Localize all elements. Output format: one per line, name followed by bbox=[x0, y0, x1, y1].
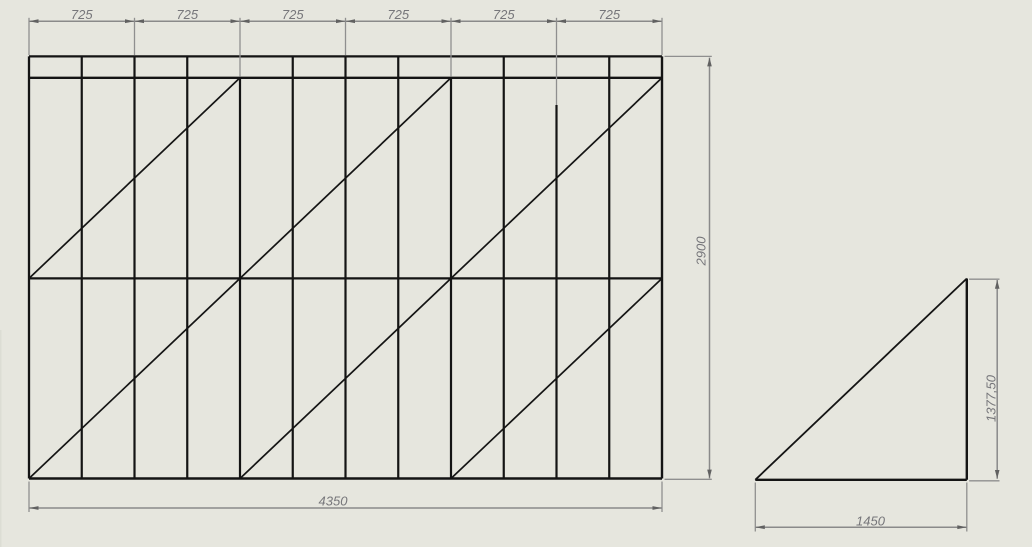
svg-text:725: 725 bbox=[598, 7, 620, 22]
svg-text:4350: 4350 bbox=[319, 494, 349, 509]
svg-text:725: 725 bbox=[176, 7, 198, 22]
svg-text:2900: 2900 bbox=[693, 236, 708, 267]
svg-text:725: 725 bbox=[493, 7, 515, 22]
svg-text:725: 725 bbox=[387, 7, 409, 22]
svg-text:725: 725 bbox=[71, 7, 93, 22]
svg-text:1377,50: 1377,50 bbox=[984, 374, 999, 422]
svg-text:725: 725 bbox=[282, 7, 304, 22]
svg-text:1450: 1450 bbox=[856, 513, 886, 528]
